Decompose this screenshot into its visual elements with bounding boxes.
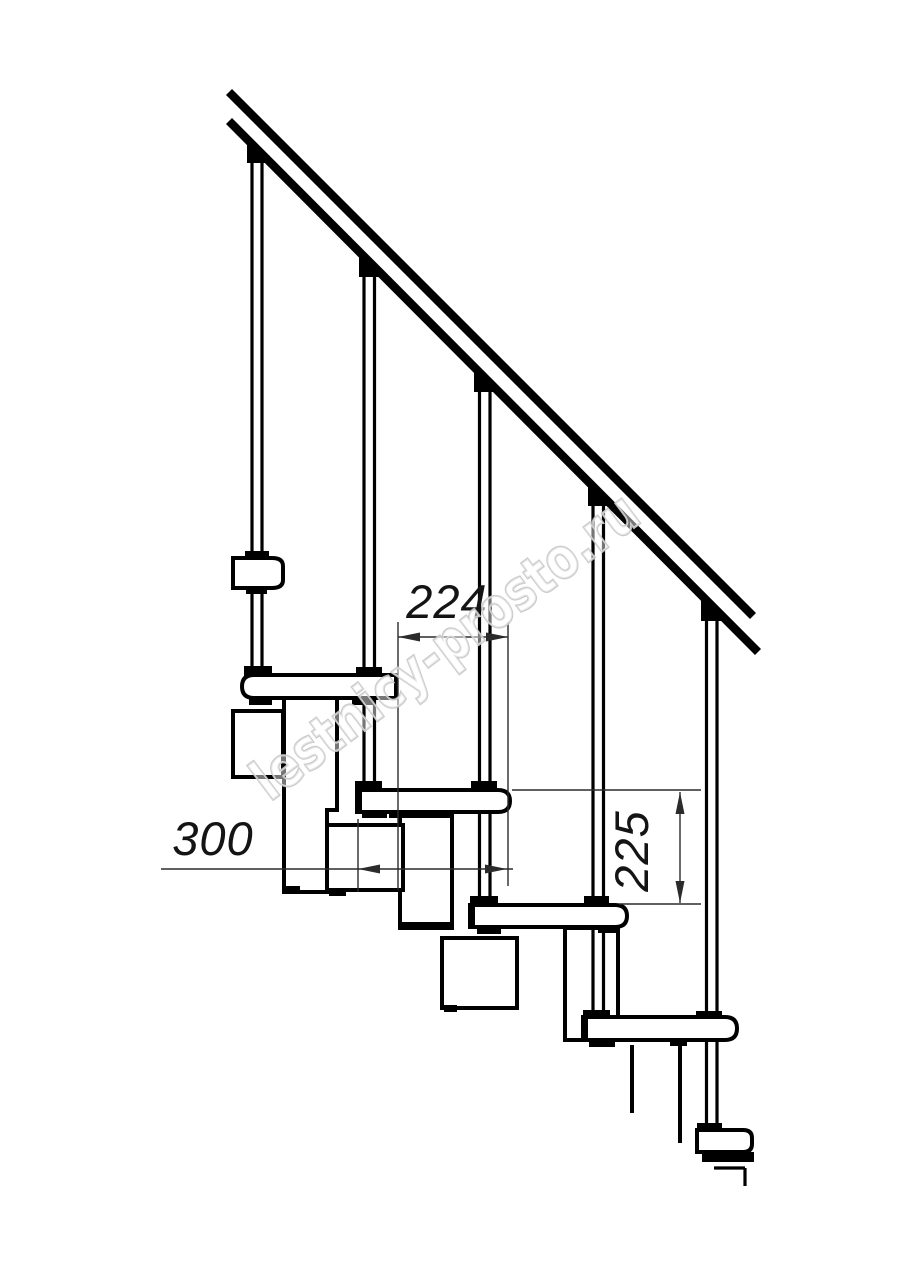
drawing-svg: 224 300 225 lestnicy-prosto.ru [0,0,914,1280]
module-under-tread-6-lines [632,1045,680,1143]
tread-5 [583,1017,737,1040]
dim-label-300: 300 [172,812,253,865]
tread-bottom-stub [697,1130,752,1152]
baluster-5 [696,597,724,1132]
tread-4 [470,905,627,927]
module-pad-4 [442,938,517,1008]
tread-3 [357,790,510,812]
module-under-tread-3 [400,812,452,928]
handrail [229,92,758,652]
watermark-text: lestnicy-prosto.ru [239,480,652,814]
baluster-1 [244,139,272,676]
tread-top-stub [233,558,283,588]
staircase-technical-drawing: 224 300 225 lestnicy-prosto.ru [0,0,914,1280]
dim-label-225: 225 [605,810,658,892]
floor-edge-line [714,1168,745,1186]
module-pad-3 [327,825,403,890]
dimension-225: 225 [512,790,701,904]
